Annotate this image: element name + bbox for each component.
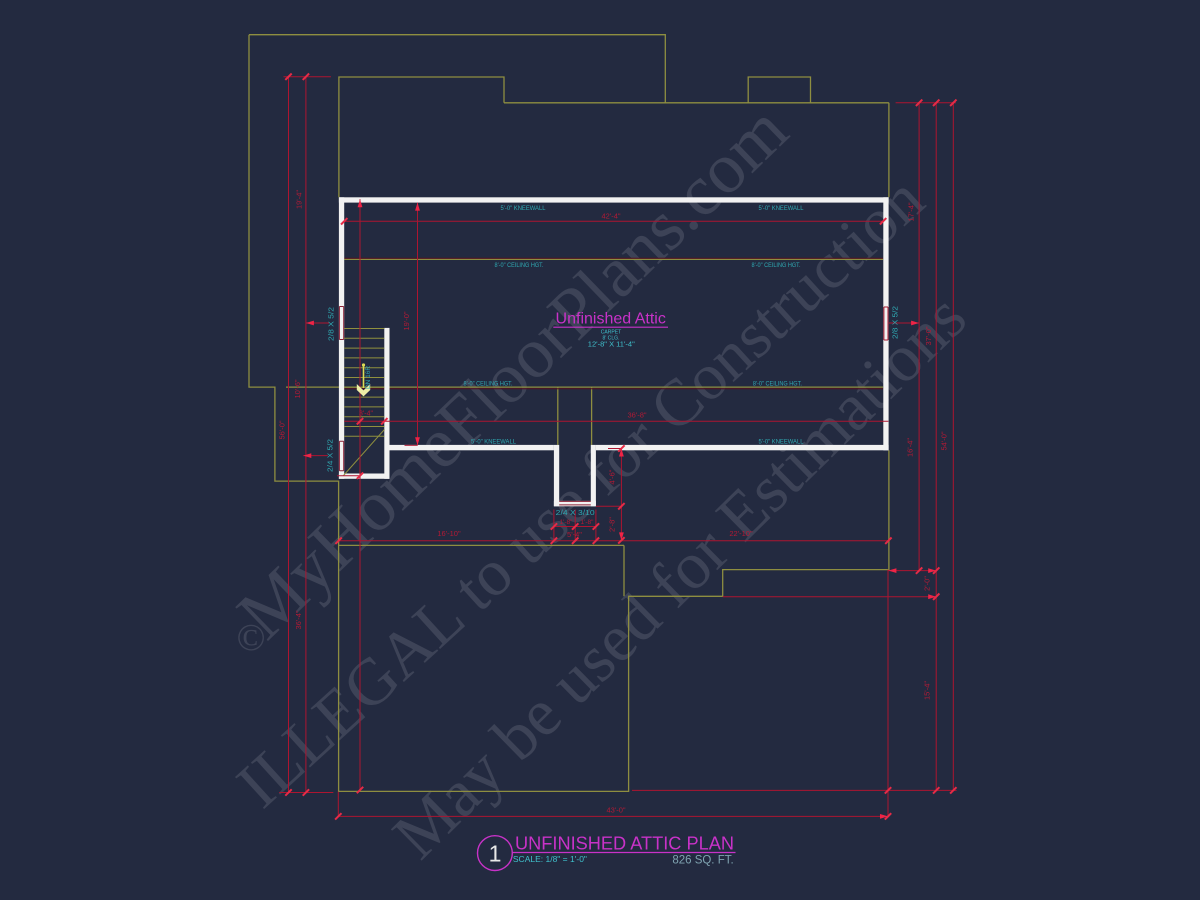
svg-text:36'-8": 36'-8" <box>627 411 646 420</box>
svg-text:16'-4": 16'-4" <box>906 438 915 457</box>
svg-text:56'-0": 56'-0" <box>278 420 287 439</box>
svg-text:5'-4": 5'-4" <box>567 530 582 539</box>
svg-text:15'-4": 15'-4" <box>923 681 932 700</box>
svg-text:43'-0": 43'-0" <box>606 806 625 815</box>
svg-text:2/8 X 5/2: 2/8 X 5/2 <box>327 307 336 341</box>
svg-text:8'-0" CEILING HGT.: 8'-0" CEILING HGT. <box>752 262 801 269</box>
svg-text:2/4 X 3/10: 2/4 X 3/10 <box>556 508 595 517</box>
svg-text:22'-10": 22'-10" <box>729 529 753 538</box>
svg-text:8'-0" CEILING HGT.: 8'-0" CEILING HGT. <box>495 262 544 269</box>
svg-text:10'-6": 10'-6" <box>293 379 302 398</box>
svg-text:DN 16R: DN 16R <box>365 366 372 389</box>
svg-text:826 SQ. FT.: 826 SQ. FT. <box>672 855 733 867</box>
svg-text:1'-8": 1'-8" <box>560 519 574 526</box>
svg-text:8'-0" CEILING HGT.: 8'-0" CEILING HGT. <box>753 381 802 388</box>
svg-text:2'-8": 2'-8" <box>608 517 617 532</box>
svg-text:54'-0": 54'-0" <box>940 431 949 450</box>
svg-text:2/8 X 5/2: 2/8 X 5/2 <box>891 306 900 339</box>
svg-text:3'-4": 3'-4" <box>359 410 373 417</box>
svg-text:SCALE: 1/8" = 1'-0": SCALE: 1/8" = 1'-0" <box>513 854 587 864</box>
svg-text:1: 1 <box>489 840 502 866</box>
svg-text:5'-0" KNEEWALL: 5'-0" KNEEWALL <box>501 205 546 212</box>
svg-text:12'-8" X 11'-4": 12'-8" X 11'-4" <box>588 342 636 349</box>
svg-text:19'-0": 19'-0" <box>402 311 411 330</box>
svg-text:2/4 X 5/2: 2/4 X 5/2 <box>326 439 335 472</box>
svg-text:37'-0": 37'-0" <box>924 326 933 345</box>
svg-text:UNFINISHED ATTIC PLAN: UNFINISHED ATTIC PLAN <box>515 834 734 854</box>
svg-text:17'-4": 17'-4" <box>907 202 916 221</box>
svg-text:5'-0" KNEEWALL: 5'-0" KNEEWALL <box>759 439 804 446</box>
svg-text:36'-4": 36'-4" <box>294 610 303 629</box>
svg-text:CARPET: CARPET <box>601 329 622 335</box>
svg-text:Unfinished Attic: Unfinished Attic <box>556 311 666 328</box>
svg-text:16'-10": 16'-10" <box>437 529 461 538</box>
svg-text:5'-0" KNEEWALL: 5'-0" KNEEWALL <box>759 205 804 212</box>
svg-text:42'-4": 42'-4" <box>601 211 620 220</box>
svg-text:4'-6": 4'-6" <box>608 469 617 484</box>
svg-text:2'-0": 2'-0" <box>923 576 932 591</box>
svg-text:8'-0" CEILING HGT.: 8'-0" CEILING HGT. <box>464 381 513 388</box>
svg-text:1'-8": 1'-8" <box>581 519 595 526</box>
svg-text:5'-0" KNEEWALL: 5'-0" KNEEWALL <box>471 439 516 446</box>
svg-text:19'-4": 19'-4" <box>295 190 304 209</box>
